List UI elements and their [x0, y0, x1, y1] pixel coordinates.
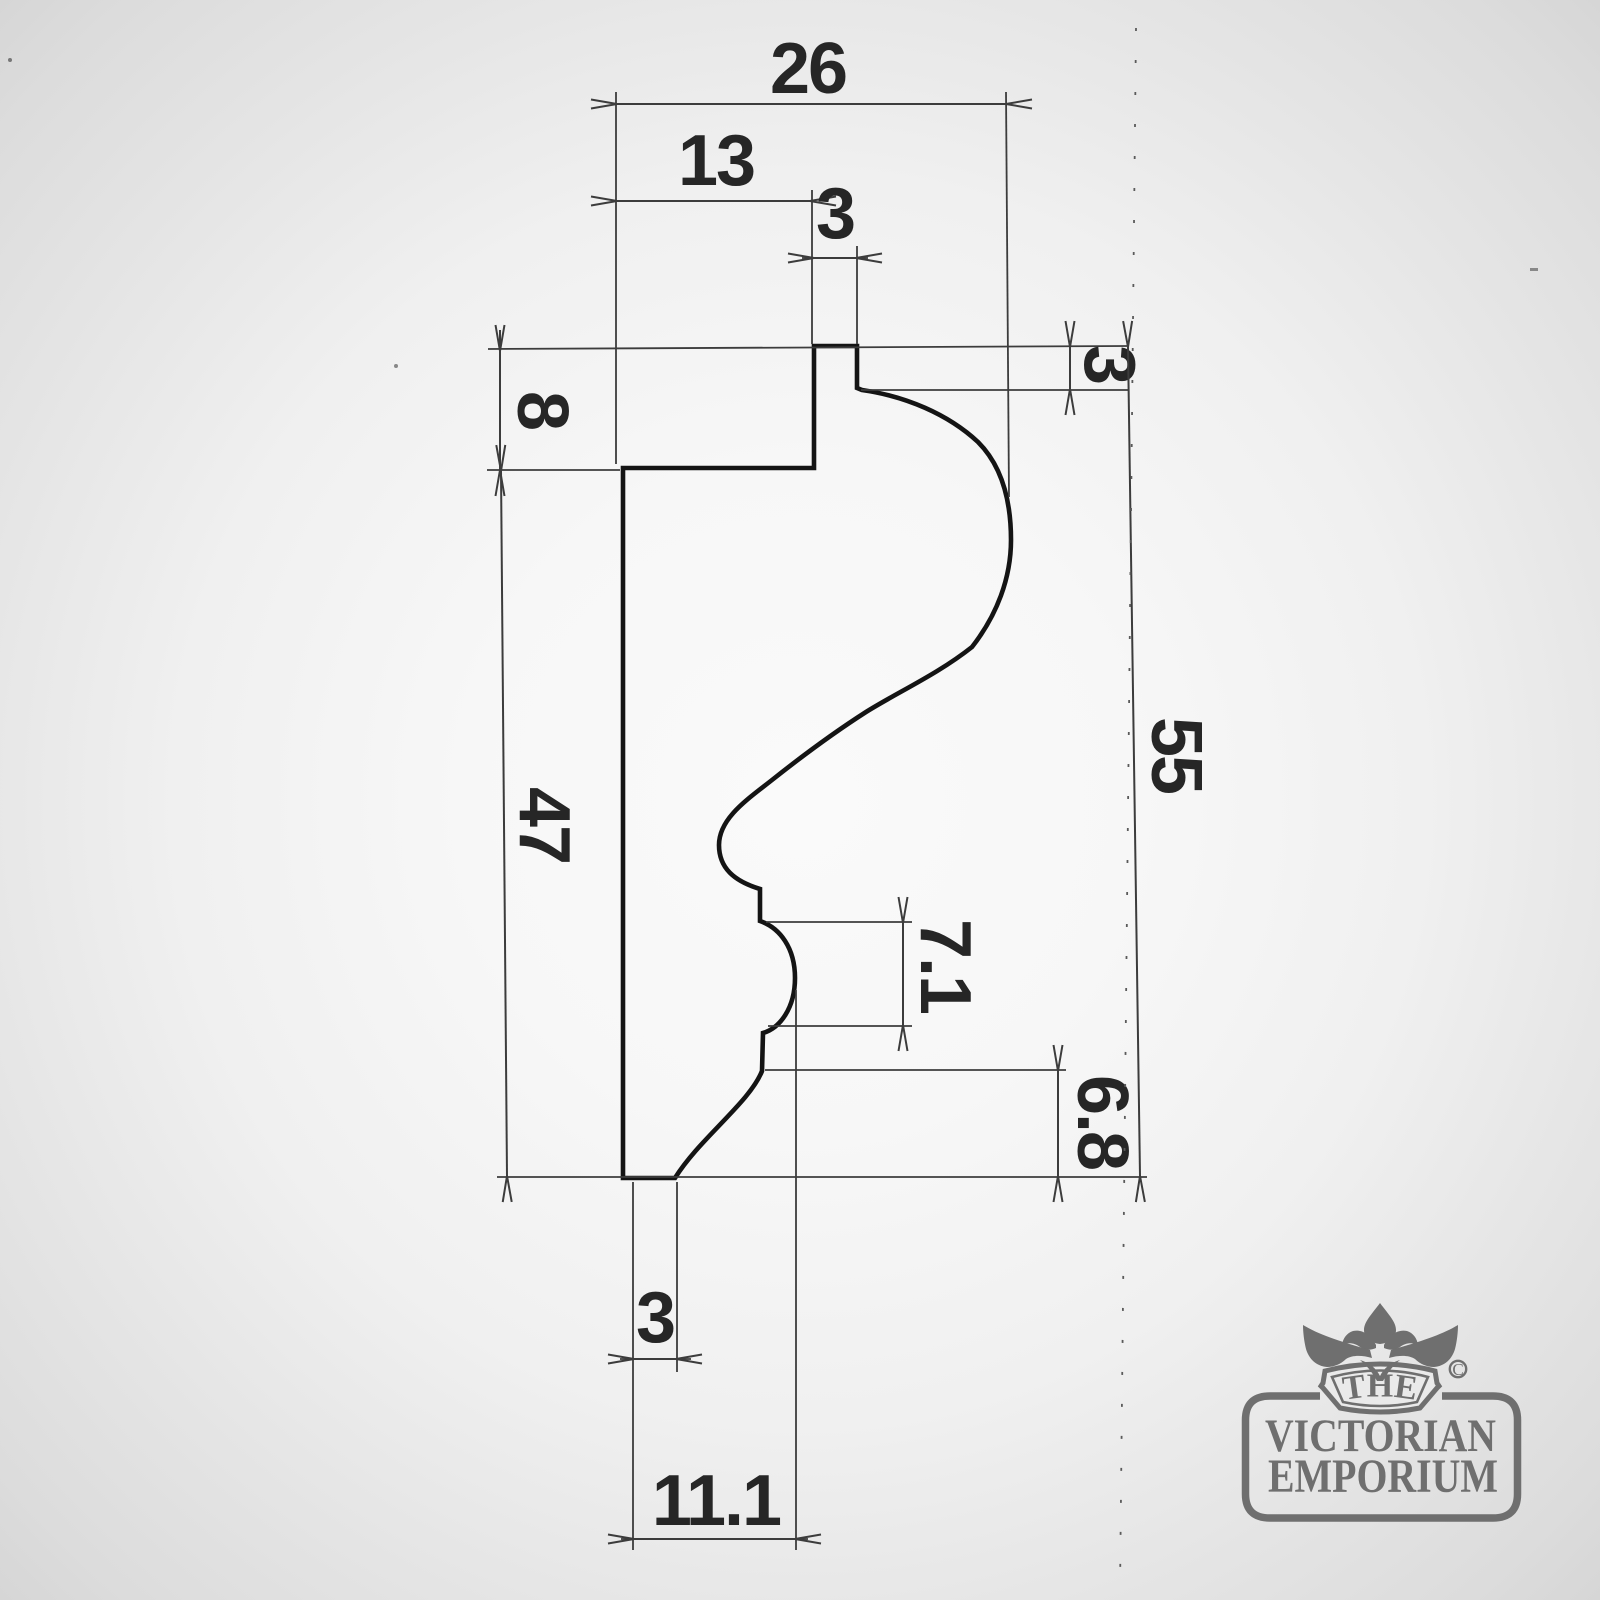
svg-text:3: 3	[816, 174, 854, 254]
svg-text:7.1: 7.1	[905, 919, 985, 1014]
svg-text:55: 55	[1136, 717, 1216, 794]
svg-text:47: 47	[504, 787, 584, 863]
svg-text:6.8: 6.8	[1062, 1075, 1142, 1169]
svg-text:13: 13	[678, 121, 754, 201]
svg-text:EMPORIUM: EMPORIUM	[1268, 1450, 1498, 1503]
svg-text:THE: THE	[1340, 1368, 1419, 1408]
svg-text:3: 3	[1069, 345, 1149, 383]
svg-text:11.1: 11.1	[652, 1461, 781, 1541]
svg-text:3: 3	[636, 1278, 674, 1358]
svg-text:8: 8	[502, 391, 582, 429]
svg-text:26: 26	[770, 29, 846, 109]
svg-text:C: C	[1452, 1360, 1463, 1379]
